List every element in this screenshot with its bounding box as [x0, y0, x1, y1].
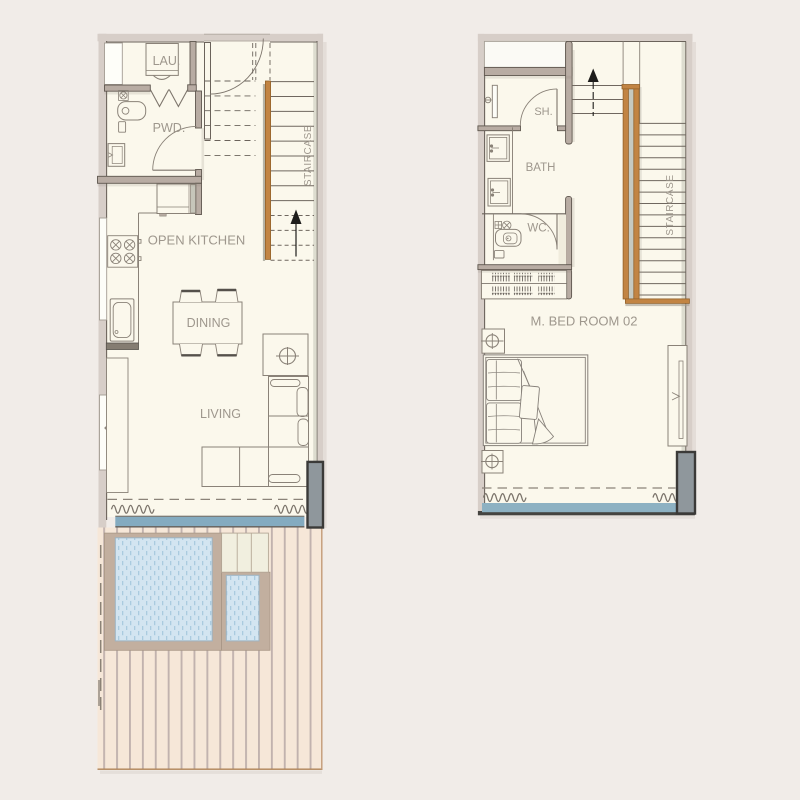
svg-text:STAIRCASE: STAIRCASE — [665, 174, 676, 235]
svg-text:WC.: WC. — [527, 223, 549, 235]
svg-text:BATH: BATH — [526, 162, 556, 174]
svg-text:STAIRCASE: STAIRCASE — [303, 125, 314, 186]
svg-text:OPEN KITCHEN: OPEN KITCHEN — [148, 233, 246, 248]
svg-text:SH.: SH. — [534, 106, 552, 118]
svg-text:M. BED ROOM 02: M. BED ROOM 02 — [531, 314, 638, 329]
svg-text:PWD.: PWD. — [153, 121, 186, 135]
svg-text:LAU.: LAU. — [153, 54, 181, 68]
svg-text:DINING: DINING — [187, 316, 231, 330]
svg-text:LIVING: LIVING — [200, 407, 241, 421]
